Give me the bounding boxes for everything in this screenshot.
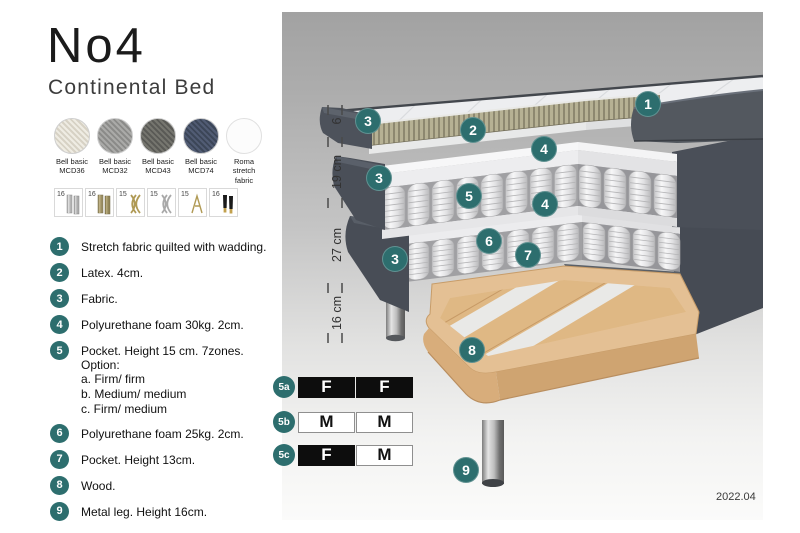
leg-option: 16 bbox=[209, 188, 238, 217]
callout-3-top: 3 bbox=[355, 108, 381, 134]
item-number-badge: 8 bbox=[50, 476, 69, 495]
item-number-badge: 5 bbox=[50, 341, 69, 360]
list-item: 4 Polyurethane foam 30kg. 2cm. bbox=[50, 315, 278, 334]
fabric-swatch: Bell basic MCD43 bbox=[137, 118, 179, 185]
fabric-swatch: Bell basic MCD32 bbox=[94, 118, 136, 185]
item-number-badge: 9 bbox=[50, 502, 69, 521]
leg-wave-silver-icon bbox=[158, 193, 174, 215]
firmness-cell: F bbox=[298, 445, 355, 466]
product-sheet: No4 Continental Bed Bell basic MCD36 Bel… bbox=[0, 0, 800, 533]
page-title: No4 bbox=[47, 18, 146, 74]
firmness-row-5c: 5c F M bbox=[273, 444, 413, 466]
firmness-cell: M bbox=[356, 412, 413, 433]
callout-8: 8 bbox=[459, 337, 485, 363]
callout-2: 2 bbox=[460, 117, 486, 143]
firmness-badge: 5b bbox=[273, 411, 295, 433]
leg-cylinder-brass-icon bbox=[96, 193, 112, 215]
fabric-swatches: Bell basic MCD36 Bell basic MCD32 Bell b… bbox=[51, 118, 265, 185]
leg-option: 15 bbox=[116, 188, 145, 217]
callout-5: 5 bbox=[456, 183, 482, 209]
fabric-swatch: Bell basic MCD74 bbox=[180, 118, 222, 185]
firmness-table: F M bbox=[298, 445, 413, 466]
firmness-cell: F bbox=[298, 377, 355, 398]
list-item: 2 Latex. 4cm. bbox=[50, 263, 278, 282]
callout-4-upper: 4 bbox=[531, 136, 557, 162]
fabric-swatch-icon bbox=[226, 118, 262, 154]
list-item: 3 Fabric. bbox=[50, 289, 278, 308]
fabric-swatch: Roma stretch fabric bbox=[223, 118, 265, 185]
list-item: 8 Wood. bbox=[50, 476, 278, 495]
list-item: 1 Stretch fabric quilted with wadding. bbox=[50, 237, 278, 256]
pocket-options: a. Firm/ firm b. Medium/ medium c. Firm/… bbox=[81, 372, 278, 417]
callout-9: 9 bbox=[453, 457, 479, 483]
item-number-badge: 7 bbox=[50, 450, 69, 469]
fabric-swatch-icon bbox=[54, 118, 90, 154]
callout-4-lower: 4 bbox=[532, 191, 558, 217]
parts-list: 1 Stretch fabric quilted with wadding. 2… bbox=[50, 237, 278, 528]
firmness-cell: M bbox=[298, 412, 355, 433]
dimension-label: 19 cm bbox=[330, 142, 344, 202]
callout-3-bottom: 3 bbox=[382, 246, 408, 272]
firmness-table: F F bbox=[298, 377, 413, 398]
leg-option: 16 bbox=[54, 188, 83, 217]
item-number-badge: 4 bbox=[50, 315, 69, 334]
list-item: 7 Pocket. Height 13cm. bbox=[50, 450, 278, 469]
dimension-label: 27 cm bbox=[330, 215, 344, 275]
leg-cone-black-gold-icon bbox=[220, 193, 236, 215]
page-subtitle: Continental Bed bbox=[48, 76, 215, 100]
firmness-cell: M bbox=[356, 445, 413, 466]
fabric-swatch-icon bbox=[97, 118, 133, 154]
fabric-swatch-icon bbox=[183, 118, 219, 154]
item-number-badge: 3 bbox=[50, 289, 69, 308]
leg-option: 16 bbox=[85, 188, 114, 217]
item-number-badge: 2 bbox=[50, 263, 69, 282]
fabric-swatch-icon bbox=[140, 118, 176, 154]
callout-7: 7 bbox=[515, 242, 541, 268]
callout-6: 6 bbox=[476, 228, 502, 254]
leg-option: 15 bbox=[178, 188, 207, 217]
firmness-row-5a: 5a F F bbox=[273, 376, 413, 398]
info-column: No4 Continental Bed Bell basic MCD36 Bel… bbox=[0, 0, 282, 533]
list-item: 5 Pocket. Height 15 cm. 7zones. Option: bbox=[50, 341, 278, 373]
list-item: 9 Metal leg. Height 16cm. bbox=[50, 502, 278, 521]
item-number-badge: 1 bbox=[50, 237, 69, 256]
version-label: 2022.04 bbox=[716, 491, 756, 503]
firmness-badge: 5c bbox=[273, 444, 295, 466]
firmness-cell: F bbox=[356, 377, 413, 398]
leg-wave-gold-icon bbox=[127, 193, 143, 215]
leg-options: 16 16 15 bbox=[54, 188, 238, 217]
leg-option: 15 bbox=[147, 188, 176, 217]
dimension-label: 16 cm bbox=[330, 283, 344, 343]
leg-hairpin-gold-icon bbox=[189, 193, 205, 215]
item-number-badge: 6 bbox=[50, 424, 69, 443]
firmness-row-5b: 5b M M bbox=[273, 411, 413, 433]
firmness-table: M M bbox=[298, 412, 413, 433]
leg-cylinder-silver-icon bbox=[65, 193, 81, 215]
callout-3-middle: 3 bbox=[366, 165, 392, 191]
firmness-badge: 5a bbox=[273, 376, 295, 398]
callout-1: 1 bbox=[635, 91, 661, 117]
list-item: 6 Polyurethane foam 25kg. 2cm. bbox=[50, 424, 278, 443]
cutaway-diagram-panel: 6 19 cm 27 cm 16 cm 1 2 3 4 3 5 4 6 7 3 … bbox=[282, 12, 763, 520]
fabric-swatch: Bell basic MCD36 bbox=[51, 118, 93, 185]
